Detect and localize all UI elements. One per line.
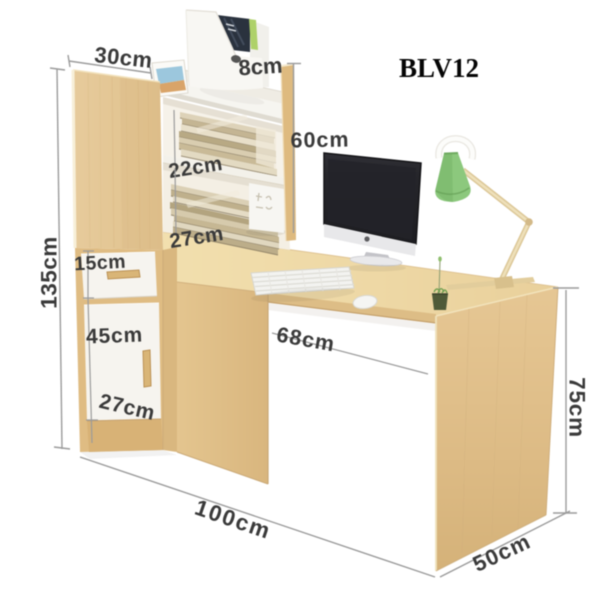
svg-text:45cm: 45cm: [86, 324, 144, 349]
svg-text:75cm: 75cm: [565, 377, 590, 438]
svg-text:8cm: 8cm: [238, 52, 284, 80]
svg-text:BLV12: BLV12: [399, 53, 479, 83]
svg-text:15cm: 15cm: [74, 251, 127, 276]
svg-text:135cm: 135cm: [37, 236, 62, 309]
svg-text:60cm: 60cm: [290, 127, 349, 152]
